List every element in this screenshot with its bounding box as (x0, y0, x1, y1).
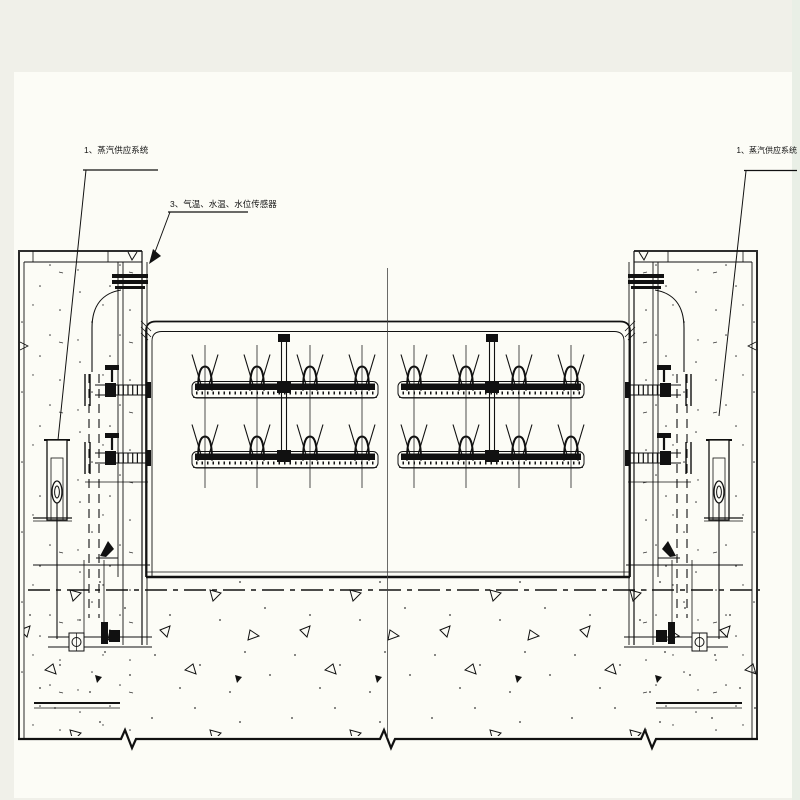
callout-left-system-label: 1、蒸汽供应系统 (84, 145, 149, 155)
scan-edge-tint (792, 0, 800, 800)
callout-right-system-label: 1、蒸汽供应系统 (737, 145, 797, 155)
callout-sensors-label: 3、气温、水温、水位传感器 (170, 199, 277, 209)
drawing-canvas: 1、蒸汽供应系统 3、气温、水温、水位传感器 1、蒸汽供应系统 (0, 0, 800, 800)
right-pier (624, 251, 758, 739)
left-pier (18, 251, 152, 739)
engineering-drawing: 1、蒸汽供应系统 3、气温、水温、水位传感器 1、蒸汽供应系统 (0, 0, 800, 800)
